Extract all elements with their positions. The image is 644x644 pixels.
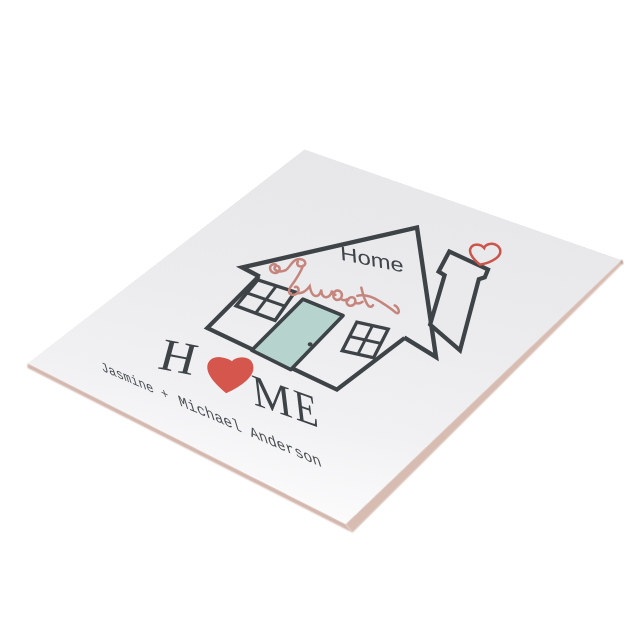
svg-text:Home: Home [340, 242, 405, 277]
svg-text:H: H [154, 330, 203, 386]
svg-text:E: E [291, 380, 320, 439]
svg-text:M: M [249, 365, 295, 429]
